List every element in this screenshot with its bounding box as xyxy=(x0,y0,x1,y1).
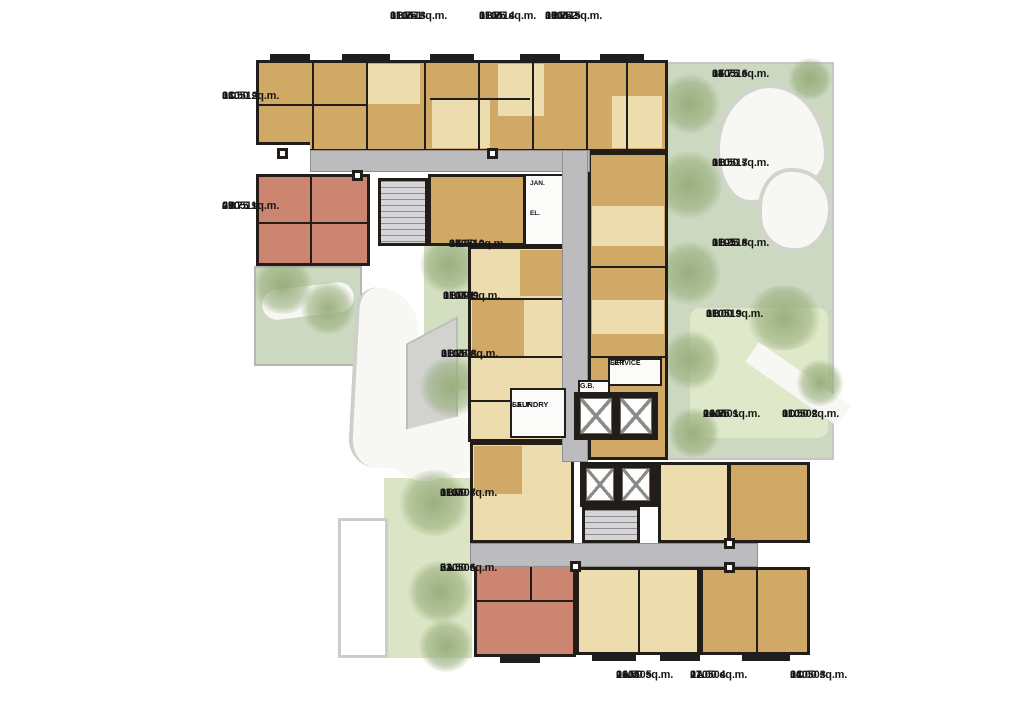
wall-segment xyxy=(310,174,312,266)
tree-icon xyxy=(788,58,832,100)
unit-area: 49.75 sq.m. xyxy=(222,200,279,213)
room-patch xyxy=(592,300,664,334)
balcony-bar xyxy=(742,654,790,661)
unit-area: 30.75 sq.m. xyxy=(545,10,602,23)
stair-icon xyxy=(582,507,640,543)
unit-area: 31.75 sq.m. xyxy=(479,10,536,23)
jan-text: JAN. xyxy=(530,180,545,188)
unit-area: 31.50 sq.m. xyxy=(782,408,839,421)
lift-icon xyxy=(622,468,650,501)
wall-segment xyxy=(256,104,366,106)
self-laundry-line2: LAUNDRY xyxy=(512,400,548,409)
unit-area: 27.00 sq.m. xyxy=(690,669,747,682)
door-junction-icon xyxy=(277,148,288,159)
unit-block-mid-top xyxy=(428,174,526,246)
unit-block-010503 xyxy=(700,567,810,655)
unit-area: 53.50 sq.m. xyxy=(440,562,497,575)
tree-icon xyxy=(662,330,720,390)
unit-block-010502 xyxy=(728,462,810,543)
unit-area: 31.00 sq.m. xyxy=(440,487,497,500)
tree-icon xyxy=(418,620,474,672)
unit-area: 33.00 sq.m. xyxy=(449,238,506,251)
tree-icon xyxy=(660,74,720,134)
wall-segment xyxy=(588,266,668,268)
el-text: EL. xyxy=(530,210,540,218)
terrace-outline xyxy=(338,518,388,658)
wall-segment xyxy=(626,60,628,150)
balcony-bar xyxy=(520,54,560,61)
unit-area: 26.50 sq.m. xyxy=(616,669,673,682)
unit-area: 31.00 sq.m. xyxy=(443,290,500,303)
unit-area: 26.75 sq.m. xyxy=(703,408,760,421)
corridor-bottom xyxy=(470,543,758,567)
balcony-bar xyxy=(342,54,390,61)
tree-icon xyxy=(398,470,470,536)
wall-segment xyxy=(430,98,530,100)
door-junction-icon xyxy=(724,562,735,573)
wall-segment xyxy=(756,567,758,655)
door-junction-icon xyxy=(724,538,735,549)
lift-icon xyxy=(580,398,612,434)
unit-area: 31.25 sq.m. xyxy=(441,348,498,361)
balcony-bar xyxy=(270,54,310,61)
room-patch xyxy=(368,64,420,104)
wall-segment xyxy=(366,60,368,150)
wall-segment xyxy=(532,60,534,150)
wall-segment xyxy=(638,567,640,655)
wall-segment xyxy=(478,60,480,150)
unit-block-010501 xyxy=(658,462,730,543)
unit-area: 31.25 sq.m. xyxy=(712,237,769,250)
unit-area: 31.00 sq.m. xyxy=(706,308,763,321)
unit-area: 33.50 sq.m. xyxy=(222,90,279,103)
self-laundry-room xyxy=(510,388,566,438)
lift-icon xyxy=(620,398,652,434)
room-patch xyxy=(612,96,662,148)
service-lift-line2: LIFT xyxy=(610,360,625,369)
door-junction-icon xyxy=(570,561,581,572)
room-patch xyxy=(592,206,664,246)
tree-icon xyxy=(300,282,356,334)
balcony-bar xyxy=(500,656,540,663)
door-junction-icon xyxy=(487,148,498,159)
gb-text: G.B. xyxy=(580,383,594,392)
wall-segment xyxy=(474,600,576,602)
unit-area: 34.75 sq.m. xyxy=(712,68,769,81)
unit-area: 34.00 sq.m. xyxy=(790,669,847,682)
floor-plan: SERVICE LIFT G.B. SELF LAUNDRY JAN. EL. … xyxy=(0,0,1024,717)
lift-icon xyxy=(586,468,614,501)
wall-segment xyxy=(586,60,588,150)
wall-segment xyxy=(424,60,426,150)
balcony-bar xyxy=(660,654,700,661)
room-patch xyxy=(432,100,490,148)
corridor-top xyxy=(310,150,590,172)
door-junction-icon xyxy=(352,170,363,181)
room-patch xyxy=(498,64,544,116)
unit-area: 31.50 sq.m. xyxy=(712,157,769,170)
stair-icon xyxy=(378,178,428,246)
tree-icon xyxy=(796,360,844,406)
wall-segment xyxy=(256,222,370,224)
unit-block-010511 xyxy=(256,174,370,266)
balcony-bar xyxy=(600,54,644,61)
unit-area: 31.75 sq.m. xyxy=(390,10,447,23)
balcony-bar xyxy=(430,54,474,61)
balcony-bar xyxy=(592,654,636,661)
